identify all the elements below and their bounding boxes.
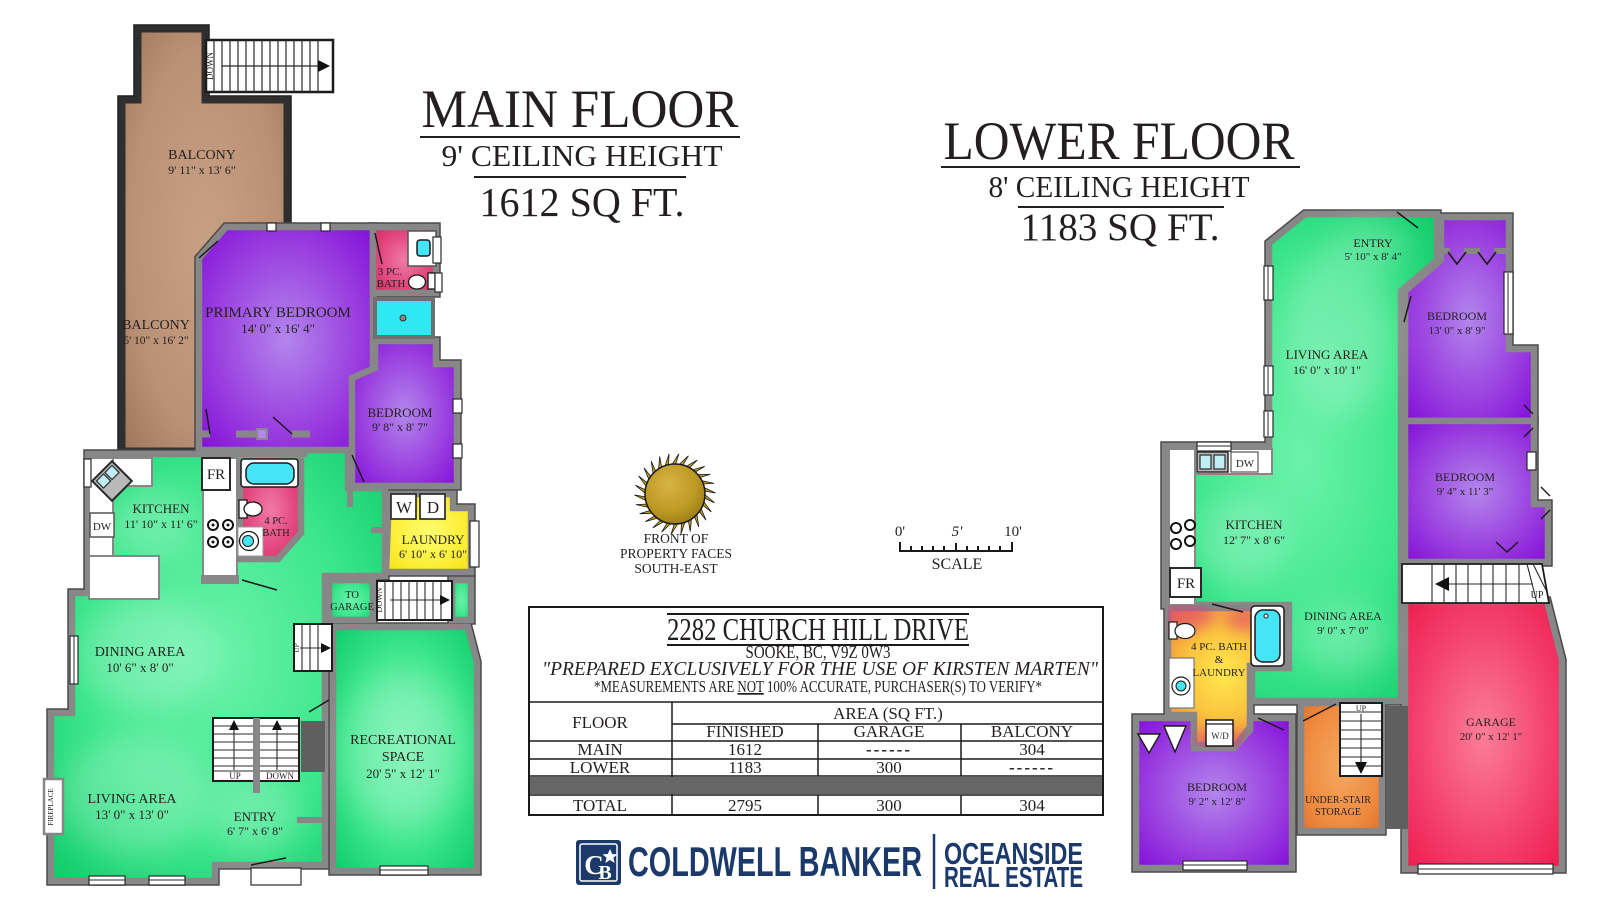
svg-text:DOWN: DOWN (205, 52, 215, 80)
svg-text:BALCONY: BALCONY (122, 318, 190, 333)
svg-text:4 PC. BATH: 4 PC. BATH (1191, 641, 1247, 653)
svg-text:1183 SQ FT.: 1183 SQ FT. (1021, 206, 1220, 249)
svg-text:FIREPLACE: FIREPLACE (47, 788, 55, 825)
svg-text:LIVING AREA: LIVING AREA (87, 792, 177, 807)
svg-text:1612: 1612 (728, 740, 762, 759)
svg-text:------: ------ (1009, 758, 1055, 777)
svg-text:304: 304 (1019, 740, 1045, 759)
svg-text:STORAGE: STORAGE (1315, 807, 1361, 818)
svg-text:AREA (SQ FT.): AREA (SQ FT.) (833, 704, 943, 723)
svg-text:REAL ESTATE: REAL ESTATE (944, 862, 1083, 894)
svg-text:BATH: BATH (377, 278, 406, 290)
svg-text:*MEASUREMENTS ARE NOT 100% ACC: *MEASUREMENTS ARE NOT 100% ACCURATE, PUR… (594, 677, 1042, 696)
svg-text:9' 8" x 8' 7": 9' 8" x 8' 7" (372, 420, 428, 434)
svg-text:TO: TO (345, 590, 359, 601)
svg-text:14' 0" x 16' 4": 14' 0" x 16' 4" (241, 321, 315, 336)
svg-text:1183: 1183 (728, 758, 761, 777)
svg-text:D: D (427, 498, 439, 517)
svg-text:5' 10" x 8' 4": 5' 10" x 8' 4" (1345, 251, 1402, 263)
svg-text:UP: UP (1531, 590, 1544, 601)
svg-text:UNDER-STAIR: UNDER-STAIR (1305, 795, 1371, 806)
svg-text:PRIMARY BEDROOM: PRIMARY BEDROOM (205, 305, 351, 321)
svg-text:300: 300 (876, 758, 902, 777)
svg-text:300: 300 (876, 796, 902, 815)
svg-text:10' 6" x 8' 0": 10' 6" x 8' 0" (106, 660, 173, 675)
svg-text:DINING AREA: DINING AREA (1304, 609, 1382, 623)
svg-text:UP: UP (229, 771, 241, 781)
svg-text:TOTAL: TOTAL (573, 796, 627, 815)
svg-text:5': 5' (952, 524, 964, 540)
svg-text:FRONT OF: FRONT OF (644, 531, 709, 546)
svg-text:5' 10" x 16' 2": 5' 10" x 16' 2" (123, 335, 188, 347)
svg-text:6' 7" x 6' 8": 6' 7" x 6' 8" (227, 824, 283, 838)
svg-text:DINING AREA: DINING AREA (95, 645, 186, 660)
svg-text:LIVING AREA: LIVING AREA (1286, 347, 1369, 362)
svg-text:FINISHED: FINISHED (706, 722, 783, 741)
svg-text:304: 304 (1019, 796, 1045, 815)
svg-text:W/D: W/D (1211, 731, 1229, 741)
svg-text:BALCONY: BALCONY (168, 148, 236, 163)
svg-text:KITCHEN: KITCHEN (1225, 517, 1283, 532)
svg-text:GARAGE: GARAGE (1466, 715, 1516, 729)
svg-text:------: ------ (866, 740, 912, 759)
svg-text:COLDWELL BANKER: COLDWELL BANKER (628, 838, 922, 885)
svg-text:BATH: BATH (262, 528, 290, 539)
svg-text:B: B (598, 862, 611, 884)
svg-text:BEDROOM: BEDROOM (1427, 309, 1487, 323)
svg-text:0': 0' (895, 524, 906, 540)
svg-text:SOUTH-EAST: SOUTH-EAST (634, 561, 718, 576)
svg-text:FR: FR (207, 467, 225, 483)
svg-text:MAIN: MAIN (577, 740, 622, 759)
svg-text:GARAGE: GARAGE (330, 602, 374, 613)
svg-text:ENTRY: ENTRY (1353, 236, 1393, 250)
svg-text:20' 5" x 12' 1": 20' 5" x 12' 1" (366, 766, 440, 781)
svg-text:DW: DW (93, 521, 112, 533)
svg-text:DOWN: DOWN (266, 771, 294, 781)
svg-text:RECREATIONAL: RECREATIONAL (350, 733, 456, 748)
svg-text:9' 0" x 7' 0": 9' 0" x 7' 0" (1317, 625, 1368, 637)
svg-text:LAUNDRY: LAUNDRY (1192, 667, 1245, 679)
svg-text:UP: UP (292, 643, 301, 653)
svg-text:9' 2" x 12' 8": 9' 2" x 12' 8" (1189, 796, 1246, 808)
svg-text:FLOOR: FLOOR (572, 713, 628, 732)
svg-text:&: & (1215, 654, 1224, 666)
svg-text:FR: FR (1177, 576, 1195, 592)
svg-text:MAIN FLOOR: MAIN FLOOR (422, 79, 739, 139)
svg-text:SPACE: SPACE (382, 750, 424, 765)
svg-text:GARAGE: GARAGE (854, 722, 925, 741)
svg-text:6' 10" x 6' 10": 6' 10" x 6' 10" (399, 547, 467, 561)
svg-text:UP: UP (1356, 704, 1367, 713)
svg-text:BEDROOM: BEDROOM (367, 405, 432, 420)
svg-text:13' 0" x 8' 9": 13' 0" x 8' 9" (1429, 325, 1486, 337)
svg-text:ENTRY: ENTRY (234, 809, 277, 824)
svg-text:13' 0" x 13' 0": 13' 0" x 13' 0" (95, 807, 169, 822)
svg-text:9' 4" x 11' 3": 9' 4" x 11' 3" (1437, 486, 1494, 498)
svg-text:2795: 2795 (728, 796, 762, 815)
svg-text:KITCHEN: KITCHEN (132, 501, 190, 516)
svg-text:9' 11" x 13' 6": 9' 11" x 13' 6" (168, 163, 236, 177)
svg-text:SCALE: SCALE (932, 556, 983, 573)
svg-text:1612 SQ FT.: 1612 SQ FT. (480, 179, 685, 225)
svg-text:BEDROOM: BEDROOM (1435, 470, 1495, 484)
svg-text:3 PC.: 3 PC. (378, 266, 403, 278)
svg-text:10': 10' (1004, 524, 1022, 540)
svg-text:20' 0" x 12' 1": 20' 0" x 12' 1" (1460, 731, 1522, 743)
svg-text:W: W (396, 498, 413, 517)
svg-text:16' 0" x 10' 1": 16' 0" x 10' 1" (1293, 363, 1361, 377)
svg-text:LOWER: LOWER (570, 758, 631, 777)
svg-text:LAUNDRY: LAUNDRY (402, 532, 465, 547)
svg-text:LOWER FLOOR: LOWER FLOOR (944, 111, 1295, 171)
svg-text:8' CEILING HEIGHT: 8' CEILING HEIGHT (989, 169, 1250, 204)
svg-text:BALCONY: BALCONY (991, 722, 1073, 741)
svg-text:11' 10" x 11' 6": 11' 10" x 11' 6" (124, 517, 197, 531)
svg-text:4 PC.: 4 PC. (264, 516, 287, 527)
svg-text:DW: DW (1236, 458, 1255, 470)
svg-text:9' CEILING HEIGHT: 9' CEILING HEIGHT (442, 138, 723, 173)
svg-text:12' 7" x 8' 6": 12' 7" x 8' 6" (1223, 533, 1285, 547)
svg-text:PROPERTY FACES: PROPERTY FACES (620, 546, 732, 561)
svg-text:BEDROOM: BEDROOM (1187, 780, 1247, 794)
svg-text:DOWN: DOWN (375, 587, 384, 612)
